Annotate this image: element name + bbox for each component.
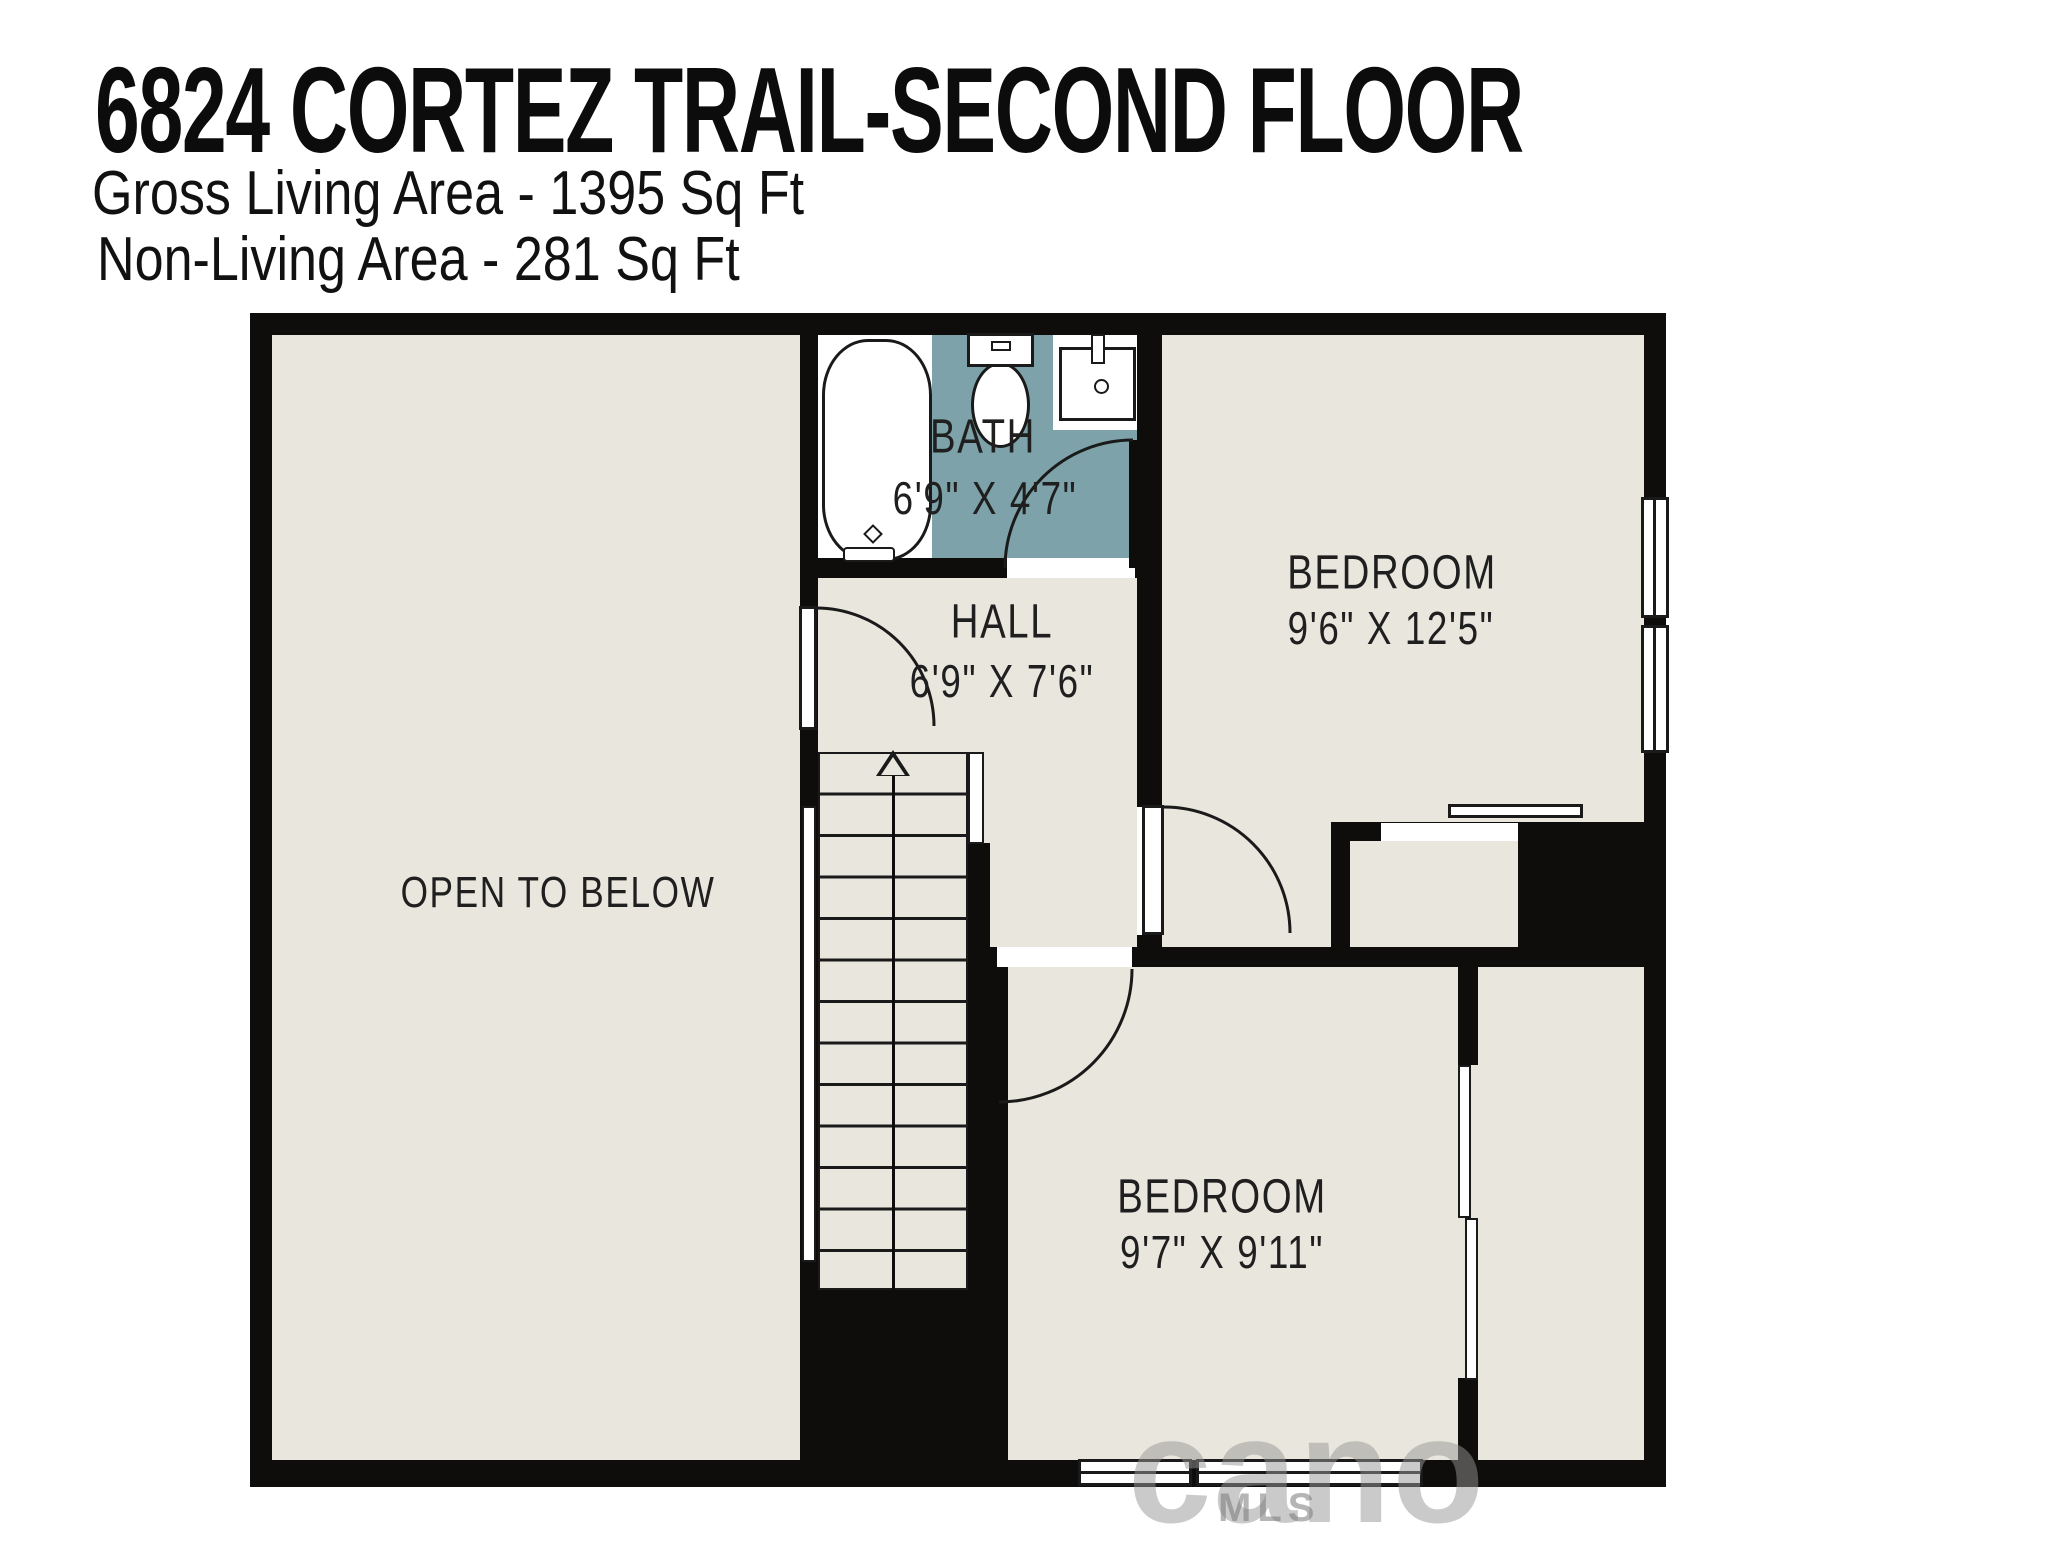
sink-faucet-icon: [1091, 334, 1105, 364]
closet-shelf-icon: [1448, 804, 1583, 818]
watermark-logo: cano: [1128, 1384, 1486, 1557]
bath-door-icon: [1129, 440, 1138, 568]
bedroom-2-dimensions: 9'7" X 9'11": [1120, 1225, 1324, 1279]
bedroom-2-label: BEDROOM: [1117, 1170, 1327, 1225]
closet-slider-panel-2: [1465, 1218, 1478, 1380]
wall-bath-bottom: [800, 558, 1007, 578]
floor-plan-page: 6824 CORTEZ TRAIL-SECOND FLOOR Gross Liv…: [0, 0, 2048, 1536]
wall-chase-block: [1518, 822, 1644, 965]
bedroom-1-label: BEDROOM: [1287, 546, 1497, 601]
bedroom-1-dimensions: 9'6" X 12'5": [1288, 601, 1495, 655]
watermark-mls-label: MLS: [1218, 1486, 1320, 1531]
closet-slider-panel-1: [1458, 1065, 1471, 1218]
sink-drain-icon: [1094, 379, 1109, 394]
non-living-area-text: Non-Living Area - 281 Sq Ft: [97, 224, 740, 295]
bath-dimensions: 6'9" X 4'7": [893, 471, 1078, 525]
toilet-flush-icon: [991, 341, 1011, 351]
stairs-up-arrow-inner: [881, 757, 905, 775]
closet-opening: [1381, 823, 1518, 841]
hall-door-icon: [799, 606, 817, 730]
bath-door-opening: [1007, 558, 1135, 578]
gross-living-area-text: Gross Living Area - 1395 Sq Ft: [92, 158, 804, 229]
wall-closet-left: [1331, 822, 1350, 950]
bedroom2-door-icon: [996, 967, 1003, 1100]
stair-railing-left: [802, 806, 816, 1262]
stair-direction-line: [892, 770, 895, 1290]
hall-dimensions: 6'9" X 7'6": [910, 654, 1095, 708]
bedroom1-door-icon: [1142, 805, 1164, 935]
bedroom2-door-opening: [997, 947, 1132, 967]
hall-label: HALL: [951, 595, 1053, 650]
window-icon-right-lower: [1641, 625, 1669, 753]
open-to-below-label: OPEN TO BELOW: [401, 868, 716, 918]
bathtub-faucet-icon: [843, 547, 895, 562]
wall-closet-strip-top: [1458, 967, 1478, 1065]
stair-railing-right: [968, 752, 984, 844]
wall-stairs-right: [968, 843, 990, 1290]
window-icon-right-upper: [1641, 497, 1669, 618]
bath-label: BATH: [930, 410, 1036, 465]
